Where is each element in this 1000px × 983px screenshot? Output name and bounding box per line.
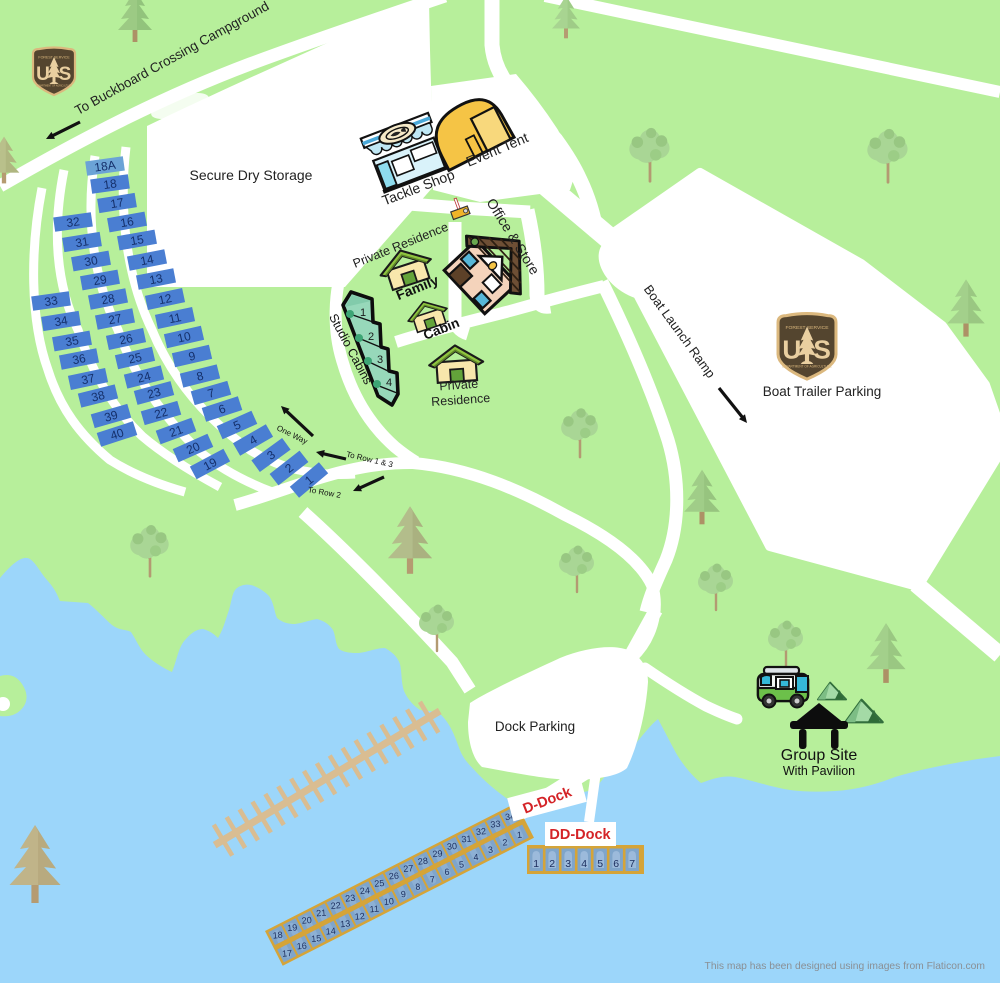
- svg-text:12: 12: [354, 911, 365, 922]
- svg-text:23: 23: [345, 893, 356, 904]
- svg-text:3: 3: [488, 845, 494, 855]
- svg-text:5: 5: [597, 858, 603, 870]
- svg-text:7: 7: [629, 858, 635, 870]
- svg-text:Boat Trailer Parking: Boat Trailer Parking: [763, 384, 882, 399]
- svg-text:Private: Private: [439, 377, 479, 394]
- svg-text:1: 1: [533, 858, 539, 870]
- svg-text:19: 19: [287, 922, 298, 933]
- svg-text:2: 2: [502, 837, 508, 847]
- svg-text:16: 16: [119, 214, 135, 230]
- svg-text:28: 28: [417, 856, 428, 867]
- svg-text:This map has been designed usi: This map has been designed using images …: [705, 961, 985, 972]
- svg-text:18: 18: [102, 176, 117, 192]
- svg-text:9: 9: [400, 889, 406, 899]
- svg-text:31: 31: [74, 234, 90, 250]
- svg-text:10: 10: [383, 896, 394, 907]
- svg-text:6: 6: [613, 858, 619, 870]
- svg-text:S: S: [813, 334, 831, 364]
- svg-text:29: 29: [92, 272, 108, 288]
- svg-text:15: 15: [311, 933, 322, 944]
- svg-text:1: 1: [517, 830, 523, 840]
- svg-text:17: 17: [109, 195, 125, 211]
- svg-text:18A: 18A: [93, 158, 116, 175]
- svg-text:4: 4: [386, 377, 392, 389]
- svg-text:27: 27: [403, 863, 414, 874]
- svg-text:7: 7: [429, 874, 435, 884]
- svg-text:S: S: [59, 64, 72, 85]
- svg-text:8: 8: [415, 882, 421, 892]
- svg-text:6: 6: [444, 867, 450, 877]
- svg-text:U: U: [782, 334, 801, 364]
- svg-text:34: 34: [53, 313, 69, 329]
- svg-text:5: 5: [459, 859, 465, 869]
- svg-text:15: 15: [129, 232, 145, 248]
- svg-text:2: 2: [368, 331, 374, 343]
- svg-text:32: 32: [476, 826, 487, 837]
- svg-text:29: 29: [432, 848, 443, 859]
- svg-text:1: 1: [360, 307, 366, 319]
- svg-text:16: 16: [296, 941, 307, 952]
- svg-text:35: 35: [64, 333, 80, 349]
- svg-text:14: 14: [325, 926, 336, 937]
- svg-text:11: 11: [369, 904, 379, 915]
- svg-text:Secure Dry Storage: Secure Dry Storage: [190, 167, 313, 183]
- svg-text:22: 22: [330, 900, 341, 911]
- svg-text:33: 33: [43, 293, 58, 309]
- svg-text:3: 3: [377, 354, 383, 366]
- svg-text:17: 17: [282, 948, 293, 959]
- svg-text:Group Site: Group Site: [781, 747, 858, 764]
- svg-text:4: 4: [473, 852, 479, 862]
- svg-text:25: 25: [374, 878, 385, 889]
- svg-text:33: 33: [490, 819, 501, 830]
- svg-text:2: 2: [549, 858, 555, 870]
- svg-text:Dock Parking: Dock Parking: [495, 719, 575, 734]
- svg-text:24: 24: [359, 885, 370, 896]
- svg-text:13: 13: [340, 918, 351, 929]
- svg-text:30: 30: [447, 841, 458, 852]
- svg-text:18: 18: [272, 930, 283, 941]
- svg-text:DD-Dock: DD-Dock: [549, 827, 611, 843]
- svg-text:30: 30: [83, 253, 99, 269]
- svg-text:DEPARTMENT OF AGRICULTURE: DEPARTMENT OF AGRICULTURE: [782, 364, 832, 368]
- svg-text:4: 4: [581, 858, 587, 870]
- svg-text:32: 32: [65, 214, 80, 230]
- svg-text:20: 20: [301, 915, 312, 926]
- svg-text:26: 26: [388, 871, 399, 882]
- svg-text:3: 3: [565, 858, 571, 870]
- svg-text:21: 21: [316, 908, 327, 919]
- svg-text:With Pavilion: With Pavilion: [783, 764, 855, 778]
- svg-text:31: 31: [461, 834, 472, 845]
- svg-text:U: U: [36, 64, 50, 85]
